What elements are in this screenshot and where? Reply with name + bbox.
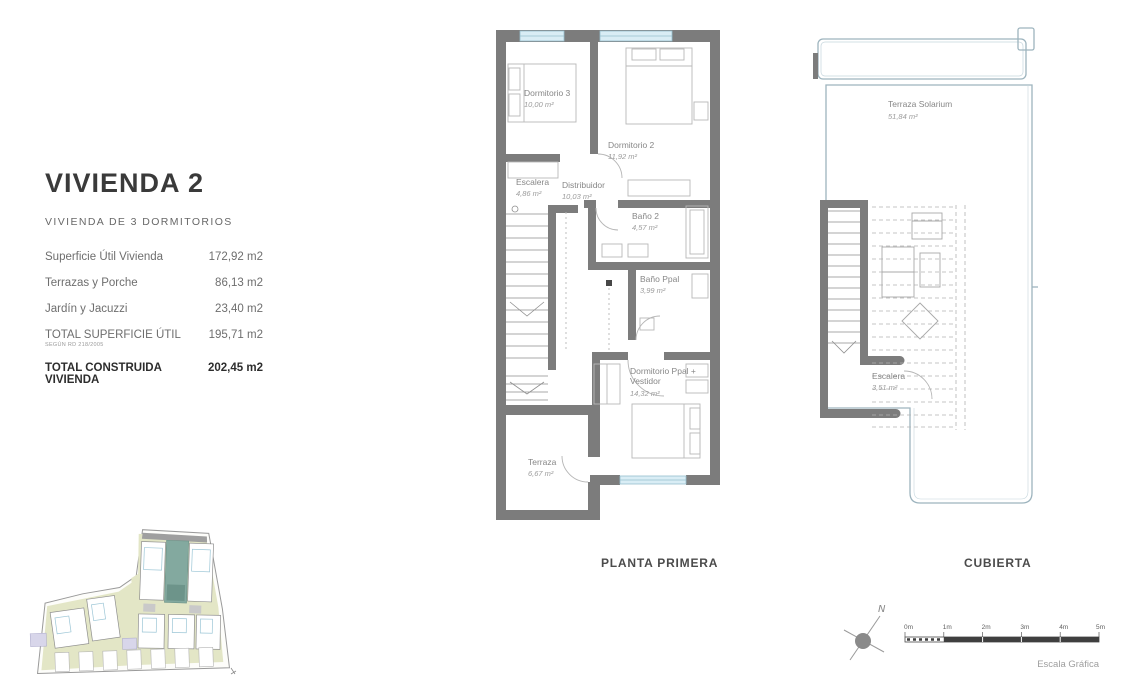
door-arc <box>904 371 932 399</box>
room-area-dormitorio-2: 11,92 m² <box>608 152 638 161</box>
table-row: Jardín y Jacuzzi 23,40 m2 <box>45 303 263 315</box>
room-label-bano-ppal: Baño Ppal <box>640 274 679 284</box>
table-row: TOTAL SUPERFICIE ÚTIL SEGÚN RD 218/2005 … <box>45 329 263 348</box>
row-note: SEGÚN RD 218/2005 <box>45 342 181 348</box>
roof-furniture <box>882 213 942 339</box>
compass-north-label: N <box>878 604 886 615</box>
area-table: Superficie Útil Vivienda 172,92 m2 Terra… <box>45 251 263 386</box>
room-label-escalera: Escalera <box>516 177 549 187</box>
parapet-wall <box>813 53 818 79</box>
page-title: VIVIENDA 2 <box>45 168 263 199</box>
windows <box>520 31 686 484</box>
room-label-terraza: Terraza <box>528 457 557 467</box>
table-row: Superficie Útil Vivienda 172,92 m2 <box>45 251 263 263</box>
row-value: 172,92 m2 <box>209 251 263 263</box>
room-label-dormitorio-ppal-2: Vestidor <box>630 376 661 386</box>
row-label: Superficie Útil Vivienda <box>45 251 163 263</box>
page-subtitle: VIVIENDA DE 3 DORMITORIOS <box>45 216 263 228</box>
row-value: 195,71 m2 <box>209 329 263 341</box>
scale-tick: 4m <box>1059 624 1068 631</box>
scale-tick: 2m <box>982 624 991 631</box>
plan-sheet-page: VIVIENDA 2 VIVIENDA DE 3 DORMITORIOS Sup… <box>0 0 1125 678</box>
scale-bar: 0m 1m 2m 3m 4m 5m Escala Gráfica <box>900 615 1110 673</box>
room-label-bano-2: Baño 2 <box>632 211 659 221</box>
room-labels: Terraza Solarium 51,84 m² Escalera 3,51 … <box>872 99 952 392</box>
row-label: TOTAL SUPERFICIE ÚTIL <box>45 329 181 341</box>
row-label: Terrazas y Porche <box>45 277 138 289</box>
room-area-bano-ppal: 3,99 m² <box>640 286 666 295</box>
furniture <box>508 48 708 458</box>
planta-primera-drawing: Dormitorio 3 10,00 m² Dormitorio 2 11,92… <box>488 22 728 522</box>
room-area-terraza-solarium: 51,84 m² <box>888 112 918 121</box>
row-label: TOTAL CONSTRUIDA VIVIENDA <box>45 362 208 386</box>
site-north-mark <box>231 668 236 674</box>
room-label-escalera-cubierta: Escalera <box>872 371 905 381</box>
table-row: Terrazas y Porche 86,13 m2 <box>45 277 263 289</box>
site-plan-map <box>25 520 245 678</box>
room-area-terraza: 6,67 m² <box>528 469 554 478</box>
room-area-distribuidor: 10,03 m² <box>562 192 592 201</box>
table-row-total: TOTAL CONSTRUIDA VIVIENDA 202,45 m2 <box>45 362 263 386</box>
lavender-plot <box>122 638 136 649</box>
north-arrow-icon: N <box>840 598 895 668</box>
row-label: Jardín y Jacuzzi <box>45 303 127 315</box>
info-panel: VIVIENDA 2 VIVIENDA DE 3 DORMITORIOS Sup… <box>45 168 263 400</box>
scale-bar-graphic <box>905 632 1099 642</box>
lavender-plot <box>30 633 46 647</box>
room-label-terraza-solarium: Terraza Solarium <box>888 99 952 109</box>
row-value: 86,13 m2 <box>215 277 263 289</box>
cubierta-drawing: Terraza Solarium 51,84 m² Escalera 3,51 … <box>808 25 1043 525</box>
room-area-escalera-cubierta: 3,51 m² <box>872 383 898 392</box>
stairs <box>828 211 860 353</box>
row-value: 202,45 m2 <box>208 362 263 374</box>
caption-planta-primera: PLANTA PRIMERA <box>601 556 718 570</box>
caption-cubierta: CUBIERTA <box>964 556 1032 570</box>
room-area-dormitorio-3: 10,00 m² <box>524 100 554 109</box>
room-labels: Dormitorio 3 10,00 m² Dormitorio 2 11,92… <box>516 88 696 478</box>
units-middle-block <box>138 614 221 649</box>
room-area-escalera: 4,86 m² <box>516 189 542 198</box>
site-plan-group <box>27 527 230 675</box>
room-label-dormitorio-3: Dormitorio 3 <box>524 88 571 98</box>
scale-tick: 1m <box>943 624 952 631</box>
room-label-dormitorio-2: Dormitorio 2 <box>608 140 655 150</box>
room-label-distribuidor: Distribuidor <box>562 180 605 190</box>
row-value: 23,40 m2 <box>215 303 263 315</box>
stairs <box>506 206 548 400</box>
scale-tick: 5m <box>1096 624 1105 631</box>
scale-tick: 0m <box>904 624 913 631</box>
room-label-dormitorio-ppal: Dormitorio Ppal + <box>630 366 696 376</box>
room-area-dormitorio-ppal: 14,32 m² <box>630 389 660 398</box>
scale-caption: Escala Gráfica <box>1037 659 1099 670</box>
scale-tick-labels: 0m 1m 2m 3m 4m 5m <box>904 624 1105 631</box>
scale-tick: 3m <box>1020 624 1029 631</box>
room-area-bano-2: 4,57 m² <box>632 223 658 232</box>
